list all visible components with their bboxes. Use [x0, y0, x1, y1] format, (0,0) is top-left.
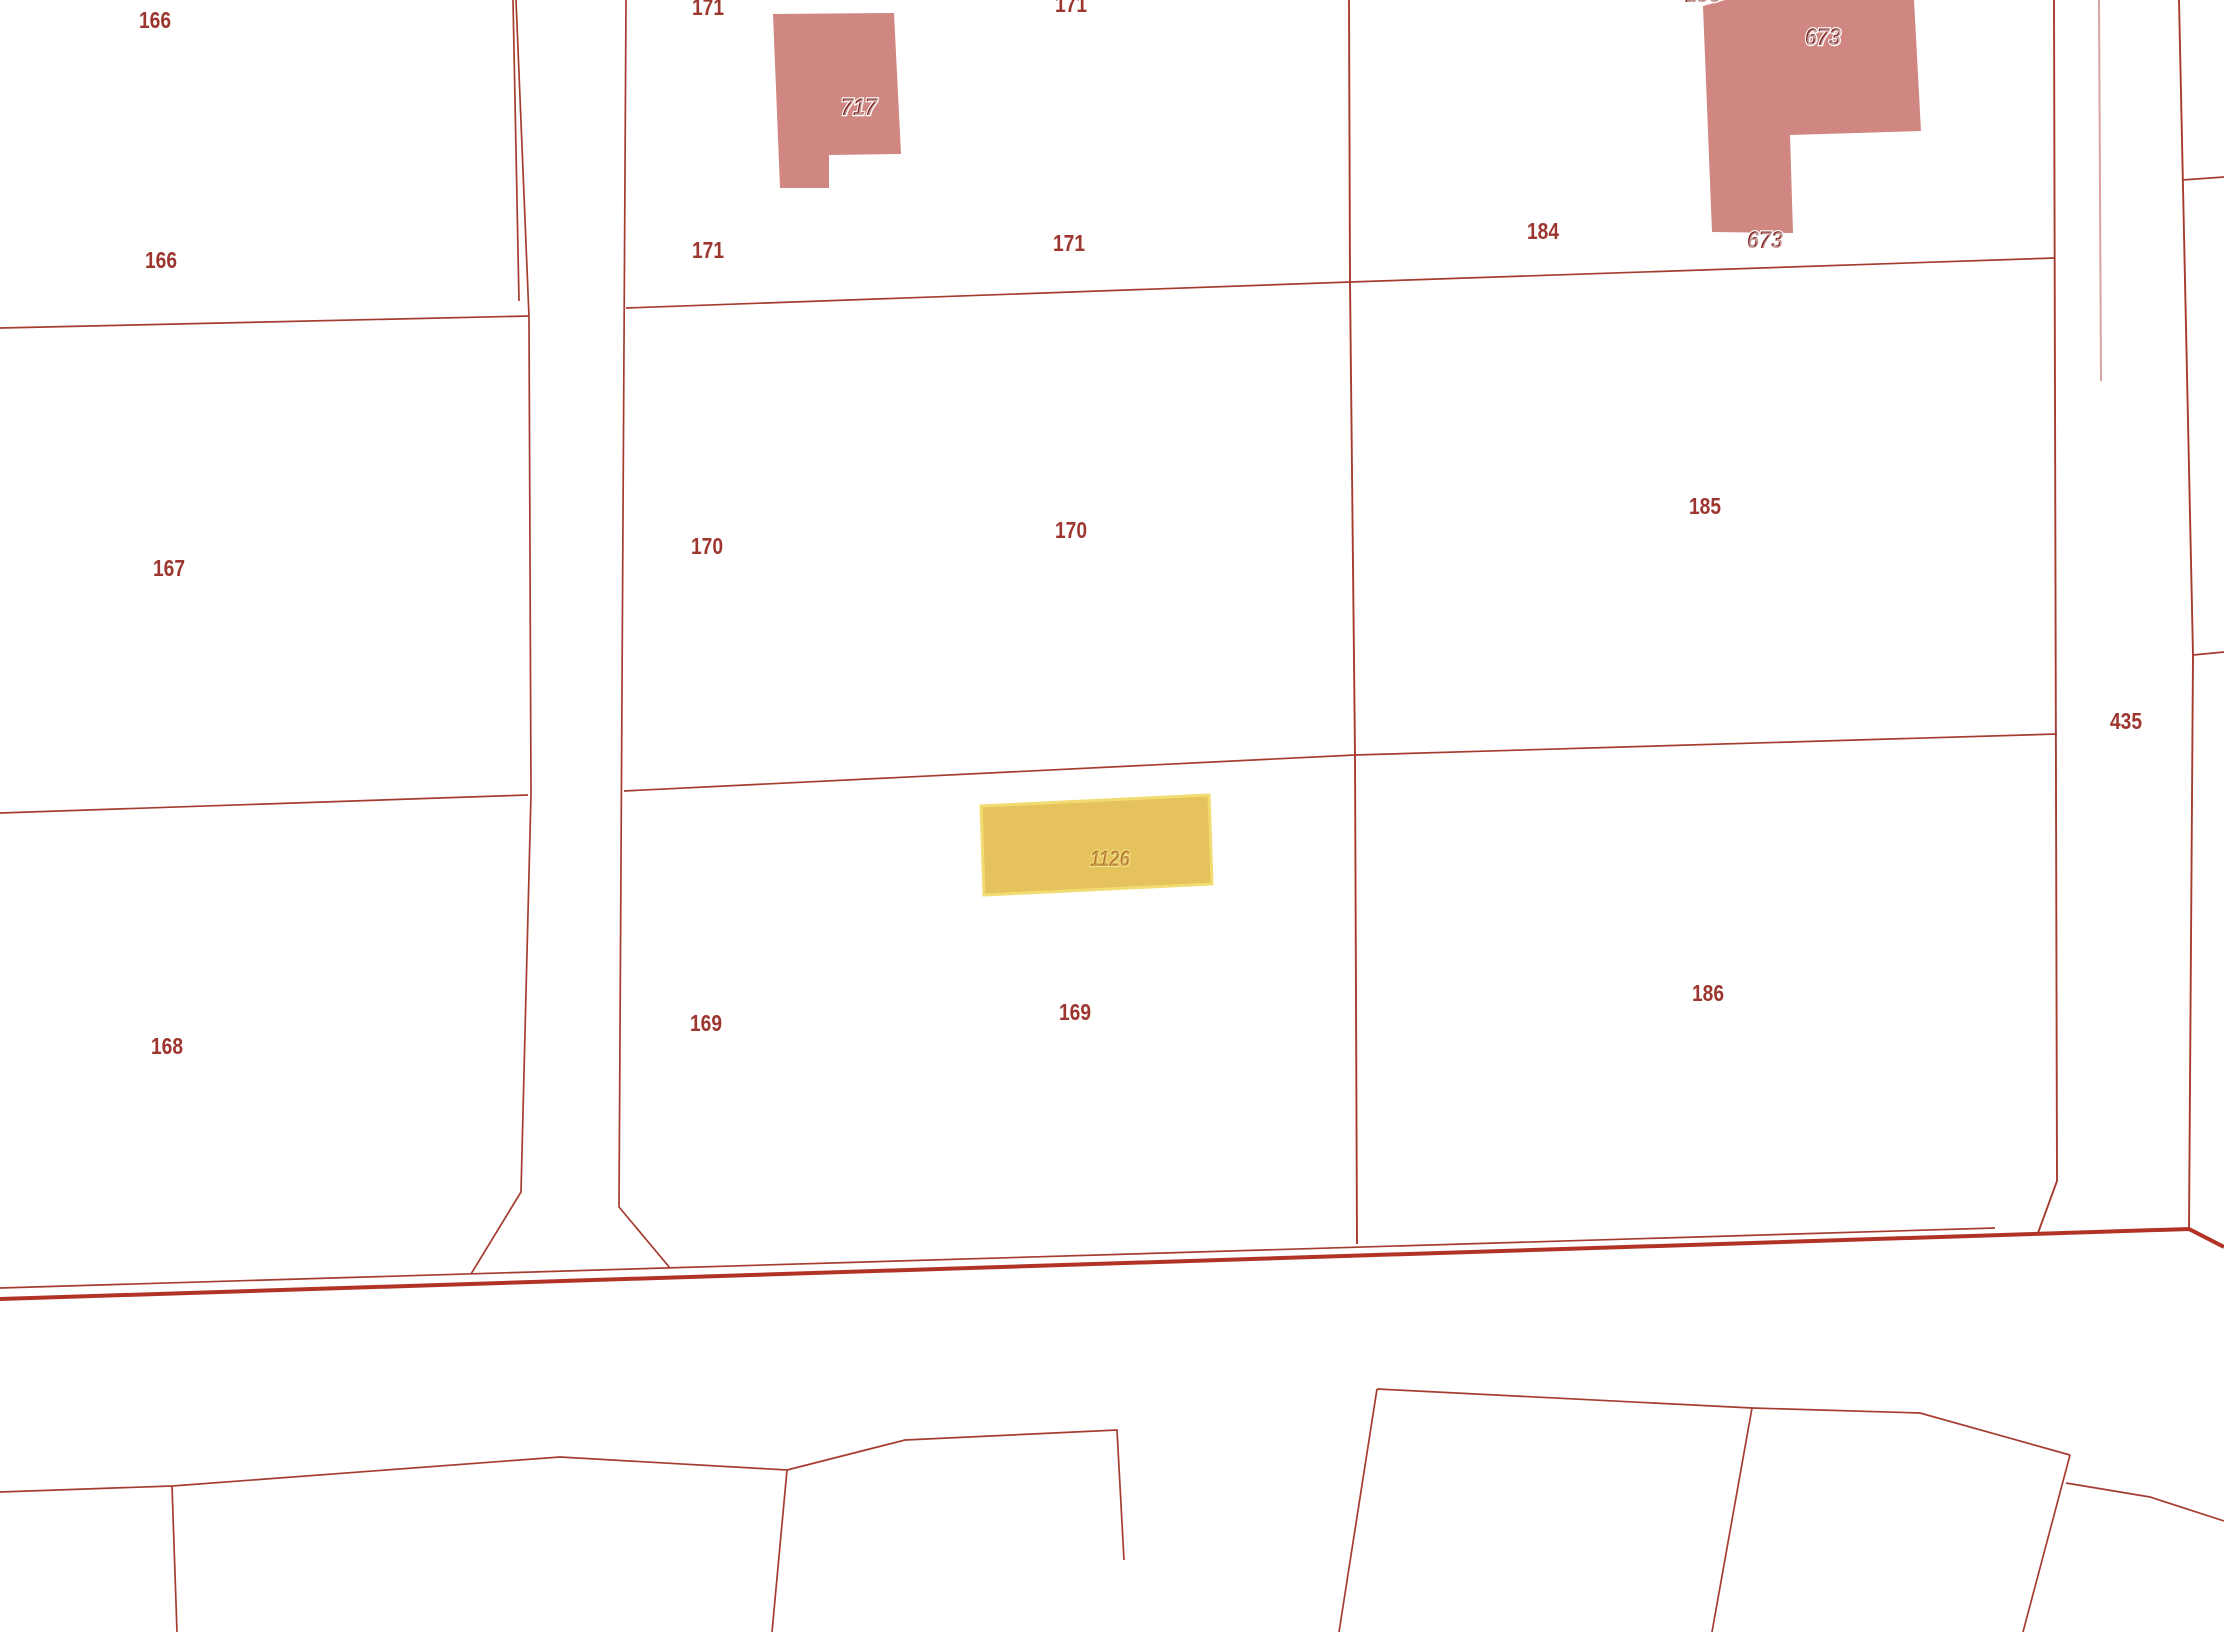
svg-text:673: 673	[1806, 25, 1843, 52]
svg-text:1126: 1126	[1091, 847, 1132, 872]
svg-text:171: 171	[692, 237, 724, 263]
svg-text:166: 166	[139, 7, 171, 33]
svg-text:673: 673	[1748, 228, 1785, 255]
svg-text:167: 167	[153, 555, 185, 581]
svg-text:136: 136	[1686, 0, 1723, 9]
svg-text:171: 171	[1053, 230, 1085, 256]
svg-text:166: 166	[145, 247, 177, 273]
svg-text:185: 185	[1689, 493, 1721, 519]
svg-text:435: 435	[2110, 708, 2142, 734]
svg-text:186: 186	[1692, 980, 1724, 1006]
svg-text:169: 169	[1059, 999, 1091, 1025]
svg-text:171: 171	[692, 0, 724, 20]
svg-text:717: 717	[842, 95, 879, 122]
svg-text:171: 171	[1055, 0, 1087, 17]
svg-text:169: 169	[690, 1010, 722, 1036]
svg-text:170: 170	[1055, 517, 1087, 543]
svg-text:170: 170	[691, 533, 723, 559]
svg-text:168: 168	[151, 1033, 183, 1059]
svg-text:184: 184	[1527, 218, 1559, 244]
